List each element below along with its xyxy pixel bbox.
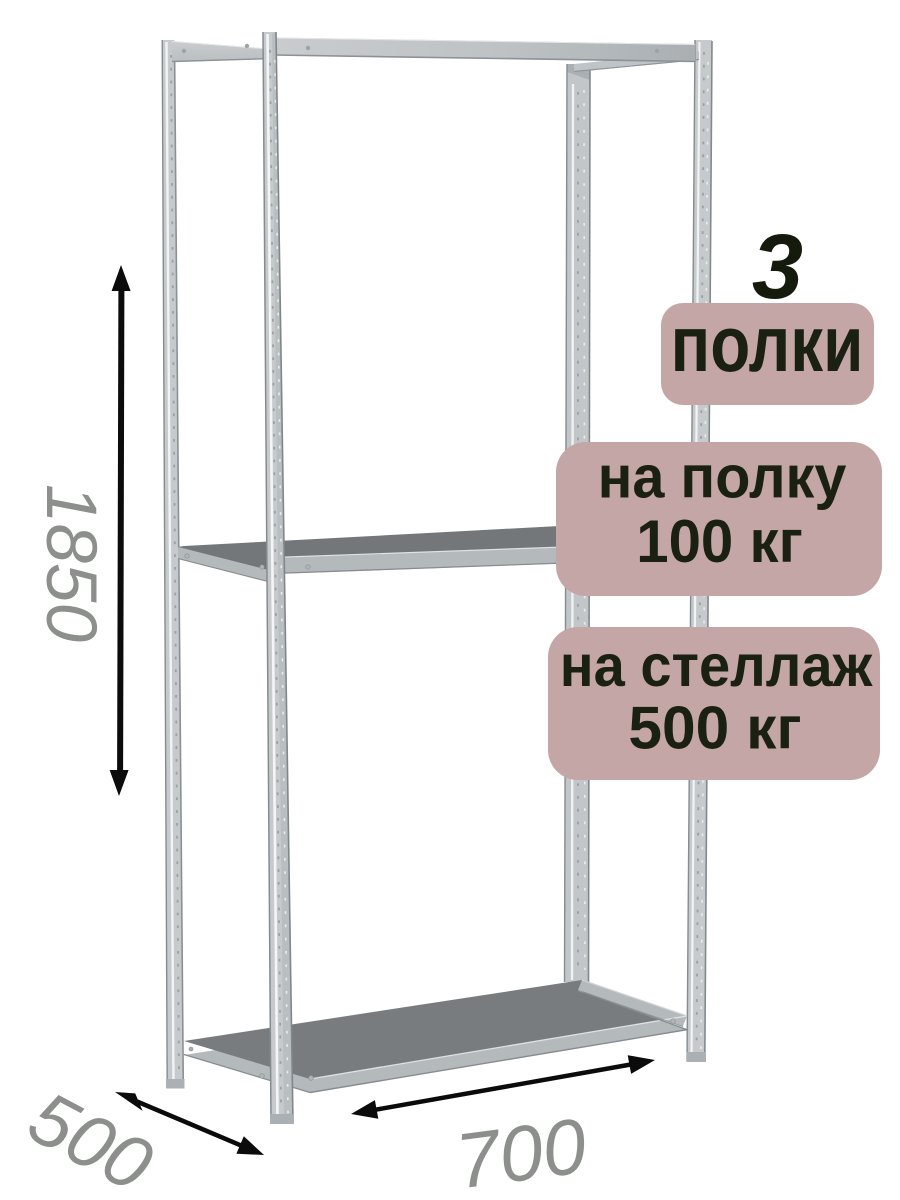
svg-text:500 кг: 500 кг	[628, 694, 801, 762]
svg-text:700: 700	[451, 1101, 592, 1200]
svg-text:1850: 1850	[31, 484, 110, 642]
svg-text:100 кг: 100 кг	[636, 507, 803, 575]
svg-text:полки: полки	[671, 300, 864, 388]
svg-text:на стеллаж: на стеллаж	[560, 634, 874, 700]
svg-text:на полку: на полку	[598, 444, 847, 510]
